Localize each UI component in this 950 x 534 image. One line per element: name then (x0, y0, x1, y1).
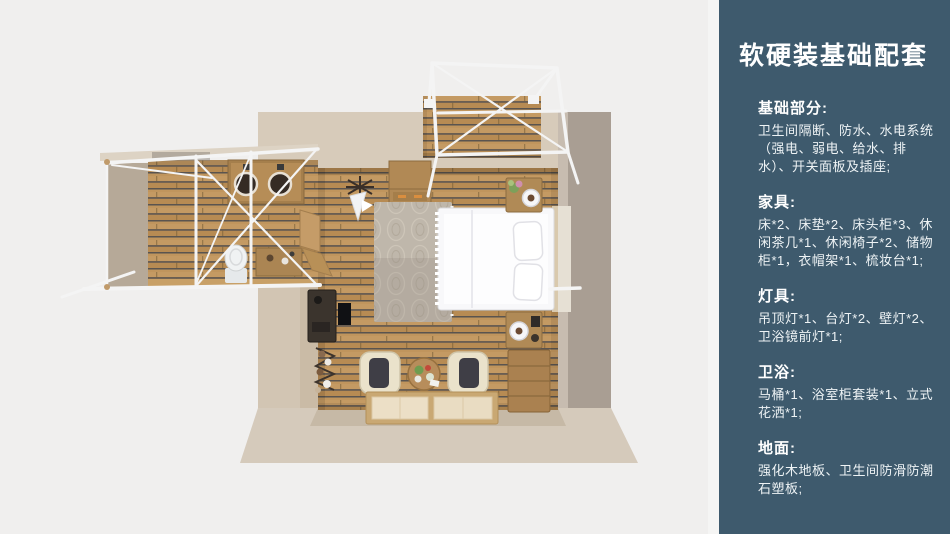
section-sanitary-title: 卫浴: (758, 364, 936, 381)
section-flooring-title: 地面: (758, 440, 936, 457)
nightstand-bottom (506, 312, 542, 348)
dresser (508, 350, 550, 412)
bed (437, 206, 559, 312)
lounge-chair-left (360, 352, 400, 394)
panel-sections: 基础部分: 卫生间隔断、防水、水电系统（强电、弱电、给水、排水）、开关面板及插座… (758, 100, 936, 498)
section-basics: 基础部分: 卫生间隔断、防水、水电系统（强电、弱电、给水、排水）、开关面板及插座… (758, 100, 936, 176)
floorplan-svg (0, 0, 719, 534)
section-sanitary: 卫浴: 马桶*1、浴室柜套装*1、立式花洒*1; (758, 364, 936, 422)
info-panel: 软硬装基础配套 基础部分: 卫生间隔断、防水、水电系统（强电、弱电、给水、排水）… (719, 0, 950, 534)
section-sanitary-body: 马桶*1、浴室柜套装*1、立式花洒*1; (758, 386, 936, 422)
section-lighting-title: 灯具: (758, 288, 936, 305)
section-furniture-body: 床*2、床垫*2、床头柜*3、休闲茶几*1、休闲椅子*2、储物柜*1，衣帽架*1… (758, 216, 936, 270)
panel-title: 软硬装基础配套 (739, 42, 938, 71)
storage-cabinet (389, 161, 431, 203)
canopy-post-base (528, 95, 539, 104)
section-lighting-body: 吊顶灯*1、台灯*2、壁灯*2、卫浴镜前灯*1; (758, 310, 936, 346)
section-furniture-title: 家具: (758, 194, 936, 211)
section-flooring: 地面: 强化木地板、卫生间防滑防潮石塑板; (758, 440, 936, 498)
mirror-screen (338, 303, 351, 325)
pillow (513, 263, 543, 300)
section-flooring-body: 强化木地板、卫生间防滑防潮石塑板; (758, 462, 936, 498)
pillow (513, 221, 543, 260)
section-furniture: 家具: 床*2、床垫*2、床头柜*3、休闲茶几*1、休闲椅子*2、储物柜*1，衣… (758, 194, 936, 270)
slide-canvas: 软硬装基础配套 基础部分: 卫生间隔断、防水、水电系统（强电、弱电、给水、排水）… (0, 0, 950, 534)
tatami-mats (366, 392, 498, 424)
coffee-table (408, 358, 440, 390)
section-lighting: 灯具: 吊顶灯*1、台灯*2、壁灯*2、卫浴镜前灯*1; (758, 288, 936, 346)
terrace-deck (423, 96, 541, 158)
nightstand-top (506, 178, 542, 212)
section-basics-body: 卫生间隔断、防水、水电系统（强电、弱电、给水、排水）、开关面板及插座; (758, 122, 936, 176)
floorplan-render (0, 0, 719, 534)
lounge-chair-right (448, 352, 488, 394)
section-basics-title: 基础部分: (758, 100, 936, 117)
porch-floor (107, 163, 148, 287)
panel-gap-strip (708, 0, 719, 534)
canopy-post-base (424, 99, 434, 108)
